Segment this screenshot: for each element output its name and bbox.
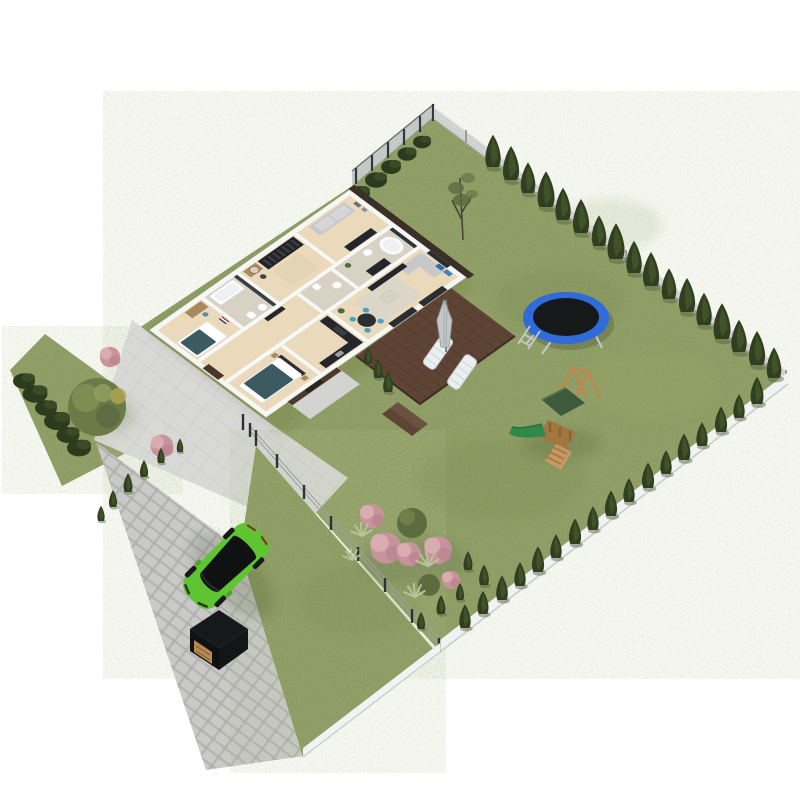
- ground-scene: [0, 0, 800, 800]
- large-garden-tree: [68, 378, 126, 436]
- property-render: [0, 0, 800, 800]
